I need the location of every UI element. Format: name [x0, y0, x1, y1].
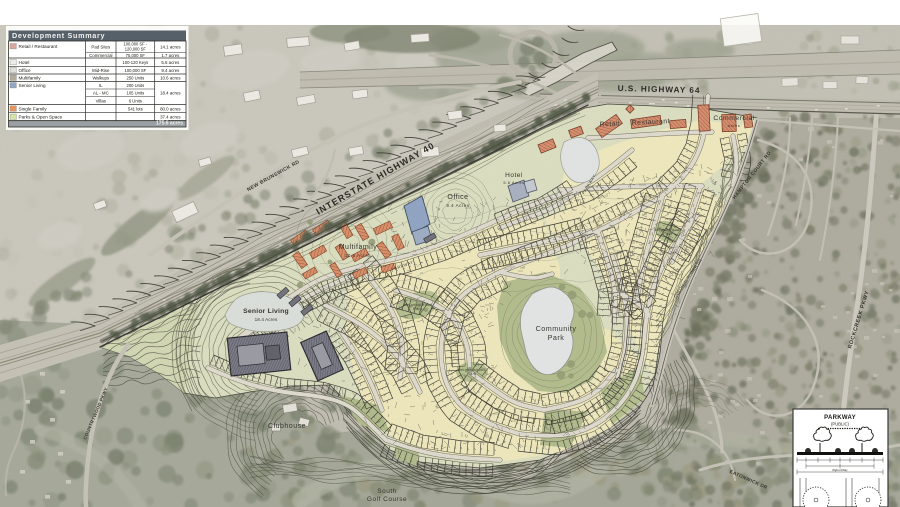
svg-text:Mid-Rise: Mid-Rise	[92, 68, 110, 73]
svg-text:Senior Living: Senior Living	[19, 83, 46, 88]
svg-text:9.4 acres: 9.4 acres	[161, 68, 180, 73]
svg-text:14.1 acres: 14.1 acres	[160, 44, 181, 49]
svg-text:100,000 SF: 100,000 SF	[125, 68, 147, 73]
svg-text:IL: IL	[99, 83, 103, 88]
svg-text:Office: Office	[19, 68, 32, 73]
svg-text:80.0 acres: 80.0 acres	[160, 106, 181, 111]
svg-text:Walkups: Walkups	[92, 75, 109, 80]
svg-text:Commercial: Commercial	[89, 53, 112, 58]
svg-text:PARKWAY: PARKWAY	[824, 415, 856, 421]
svg-text:37.4 acres: 37.4 acres	[160, 114, 181, 119]
svg-text:Villas: Villas	[96, 98, 107, 103]
svg-text:Single Family: Single Family	[19, 106, 48, 111]
svg-text:6 Units: 6 Units	[129, 98, 142, 103]
svg-text:AL - MC: AL - MC	[93, 91, 109, 96]
svg-text:1.7 acres: 1.7 acres	[161, 53, 180, 58]
svg-text:18.4 acres: 18.4 acres	[160, 91, 181, 96]
svg-text:5.6 acres: 5.6 acres	[161, 60, 180, 65]
svg-text:Right-of-Way: Right-of-Way	[832, 468, 848, 472]
svg-text:200 Units: 200 Units	[126, 83, 144, 88]
svg-text:10.6 acres: 10.6 acres	[160, 75, 181, 80]
svg-text:75,000 SF: 75,000 SF	[126, 53, 146, 58]
svg-text:250 Units: 250 Units	[126, 75, 144, 80]
svg-text:Multifamily: Multifamily	[19, 76, 42, 81]
svg-text:120,000 SF: 120,000 SF	[125, 47, 147, 52]
svg-text:Hotel: Hotel	[19, 60, 30, 65]
svg-text:Pad Sites: Pad Sites	[91, 44, 111, 49]
svg-text:105 Units: 105 Units	[126, 91, 144, 96]
svg-text:Development Summary: Development Summary	[12, 31, 105, 40]
svg-text:100-120 Keys: 100-120 Keys	[122, 60, 148, 65]
svg-text:(PUBLIC): (PUBLIC)	[831, 422, 850, 427]
svg-text:Retail / Restaurant: Retail / Restaurant	[19, 44, 59, 49]
svg-text:541 lots: 541 lots	[128, 106, 143, 111]
svg-text:175.6 acres: 175.6 acres	[156, 121, 183, 127]
svg-text:Parks & Open Space: Parks & Open Space	[19, 115, 63, 120]
